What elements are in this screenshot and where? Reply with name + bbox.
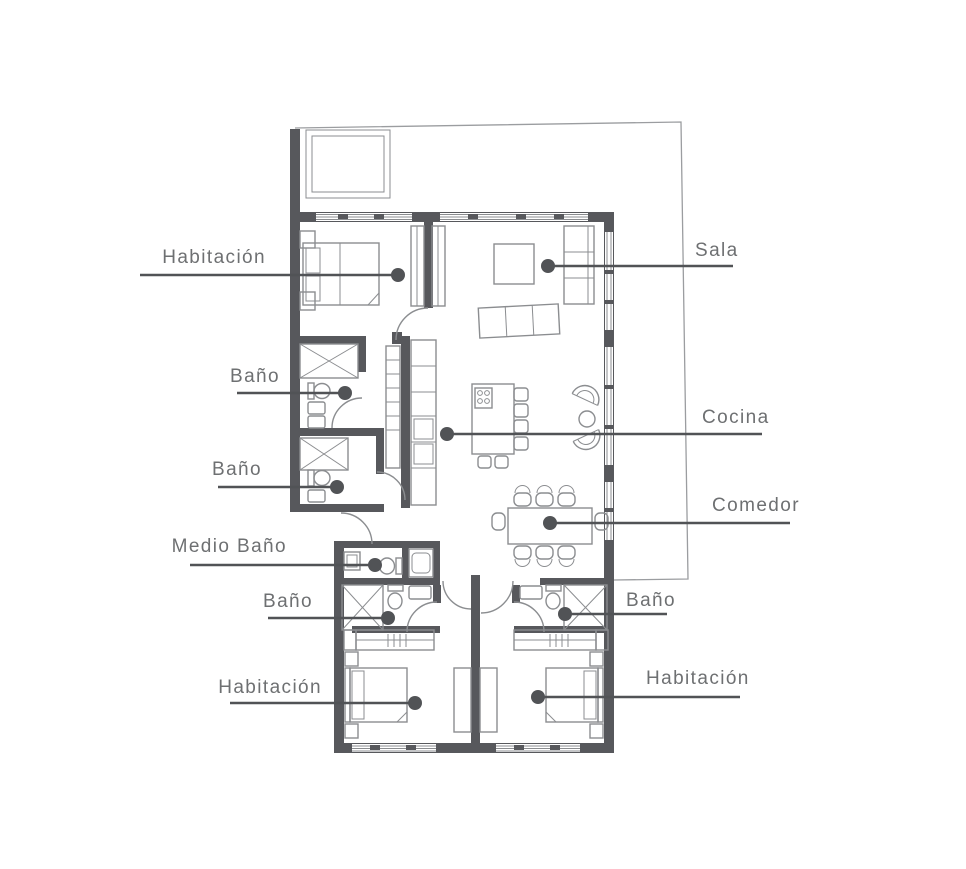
room-label-comedor: Comedor [712,495,800,517]
room-label-bano-1: Baño [230,366,280,388]
room-label-bano-2: Baño [212,459,262,481]
closet-shelving [386,346,400,468]
leader-cocina [440,427,762,441]
bathroom1-fixtures [300,344,358,428]
room-label-habitacion-1: Habitación [162,247,266,269]
room-label-habitacion-2: Habitación [218,677,322,699]
bedroom3-furniture [480,630,608,738]
floorplan-drawing [0,0,966,869]
room-label-bano-3: Baño [263,591,313,613]
floorplan-canvas: Habitación Sala Baño Cocina Baño Comedor… [0,0,966,869]
leader-lines [140,259,790,710]
leader-comedor [543,516,790,530]
exterior-walls [290,129,614,753]
bedroom1-furniture [300,226,445,310]
laundry-appliance [409,549,433,577]
leader-habitacion-1 [140,268,405,282]
room-label-habitacion-3: Habitación [646,668,750,690]
room-label-cocina: Cocina [702,407,770,429]
leader-habitacion-3 [531,690,740,704]
room-label-sala: Sala [695,240,739,262]
room-label-medio-bano: Medio Baño [172,536,287,558]
sala-furniture [478,226,594,338]
bedroom2-furniture [344,630,471,738]
lounge-chairs [572,381,604,454]
kitchen-fixtures [411,340,528,505]
room-label-bano-4: Baño [626,590,676,612]
